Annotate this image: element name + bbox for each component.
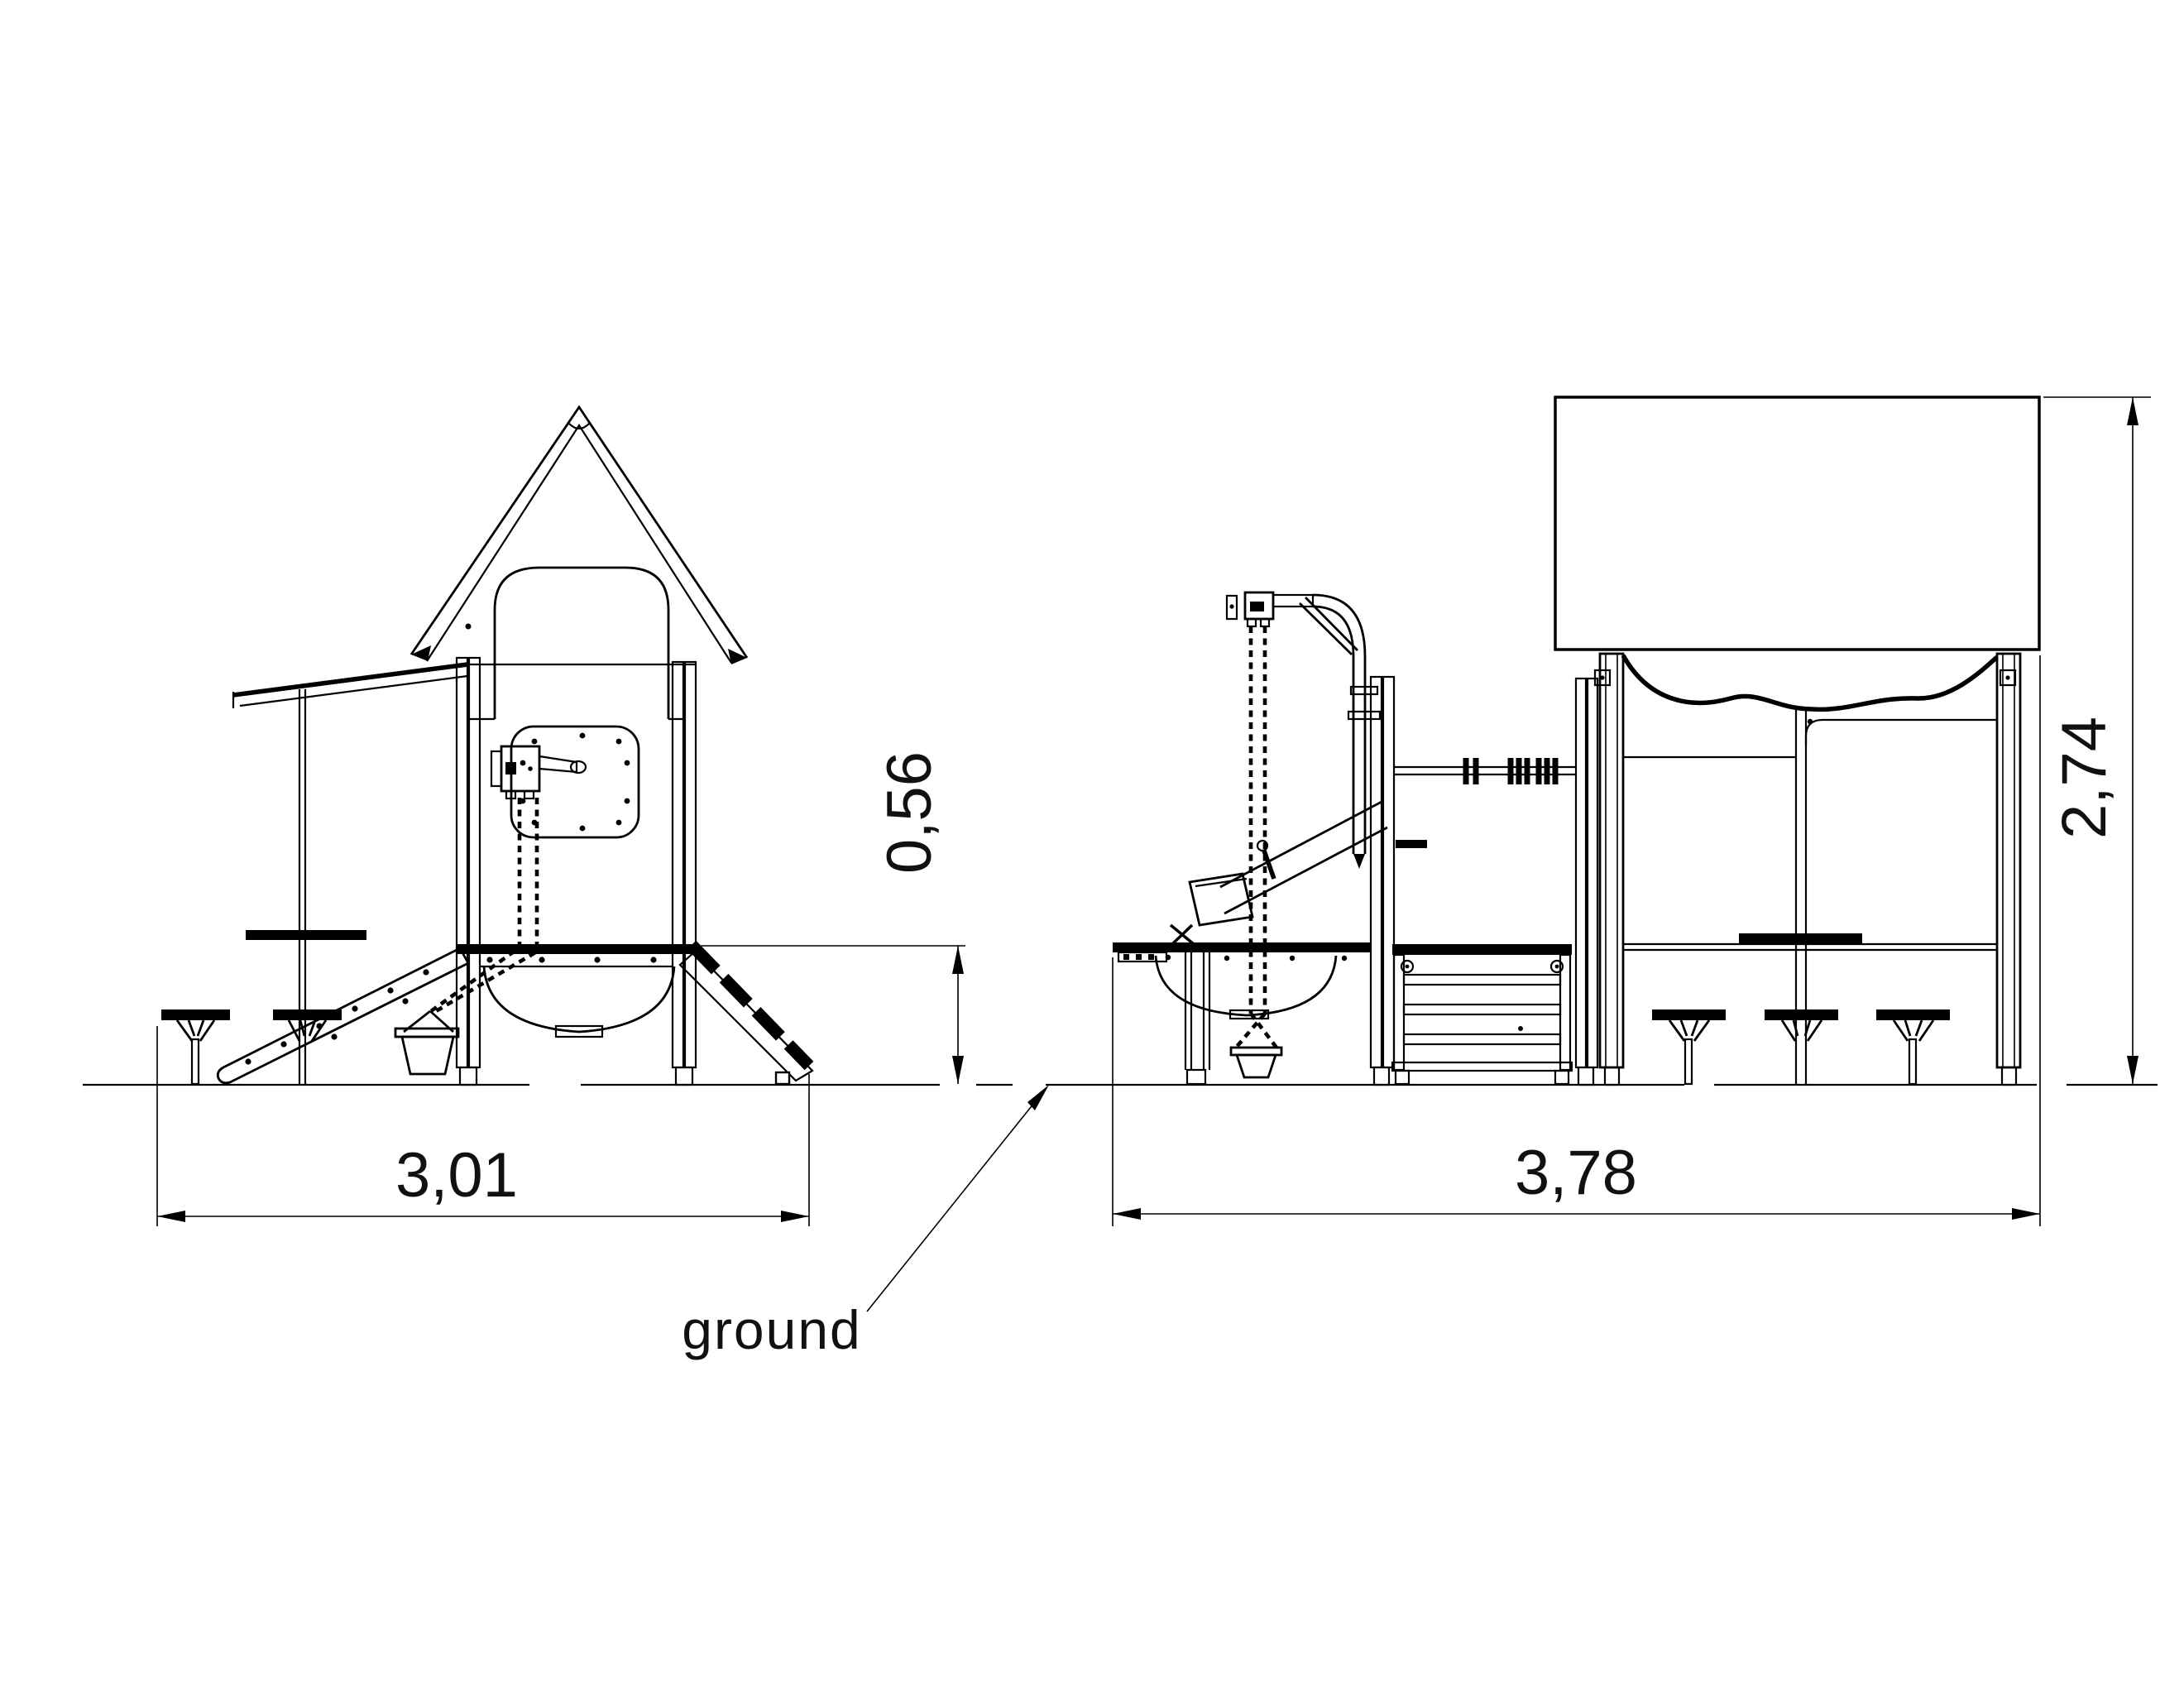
center-post: [1796, 710, 1806, 1084]
x-brace: [1171, 925, 1194, 944]
chain-right: [1236, 626, 1276, 1048]
stool-1: [1652, 1009, 1726, 1084]
ground-label: ground: [682, 1085, 1049, 1360]
stair-rung: [1404, 975, 1560, 985]
sand-bowl: [1156, 956, 1336, 1015]
ground-label-text: ground: [682, 1299, 862, 1360]
dim-value-overall-height: 2,74: [2049, 717, 2119, 839]
awning: [233, 664, 467, 708]
stool-left-tower: [161, 1009, 230, 1084]
under-bowl: [484, 966, 674, 1032]
stool-3: [1876, 1009, 1950, 1084]
tower-posts: [457, 658, 696, 1085]
chain-left: [431, 798, 537, 1011]
bucket-right: [1231, 1048, 1281, 1077]
dim-value-right-width: 3,78: [1515, 1138, 1637, 1208]
stair-rung: [1404, 1034, 1560, 1044]
stairs: [1392, 944, 1572, 1084]
panel-lines: [1623, 720, 1997, 950]
play-table-top: [246, 930, 366, 940]
roof-bolt: [466, 624, 472, 630]
flat-roof: [1555, 397, 2039, 650]
hand-grip: [1396, 840, 1427, 848]
stair-rung: [1404, 1005, 1560, 1014]
stair-foot: [1396, 1071, 1409, 1084]
bucket-left: [395, 1011, 458, 1074]
ramp-foot: [776, 1072, 789, 1084]
winch-crane-right: [1227, 592, 1380, 869]
pitched-roof: [411, 407, 747, 664]
stair-foot: [1555, 1071, 1569, 1084]
arm-tip: [571, 761, 586, 773]
technical-drawing-page: 0,56 3,01 3,78 2,74: [0, 0, 2184, 1688]
stool-2: [1765, 1009, 1838, 1041]
post-foot: [460, 1067, 477, 1085]
dimension-platform-height: 0,56: [699, 751, 965, 1084]
dimension-left-width: 3,01: [157, 1026, 809, 1226]
post-foot: [676, 1067, 692, 1085]
playground-elevation-drawing: 0,56 3,01 3,78 2,74: [0, 0, 2184, 1688]
platform: [457, 944, 699, 1037]
dim-value-platform-height: 0,56: [874, 751, 945, 874]
monkey-bar: [1394, 758, 1576, 784]
sand-table: [1113, 925, 1372, 1084]
left-play-tower: [161, 407, 812, 1085]
dim-value-left-width: 3,01: [395, 1140, 518, 1211]
climbing-ramp: [680, 945, 812, 1084]
arched-opening: [495, 568, 668, 719]
dimension-overall-height: 2,74: [2043, 397, 2151, 1084]
window-bolts: [520, 733, 630, 832]
access-board: [218, 948, 468, 1083]
winch-crane: [491, 746, 586, 798]
canopy-edge: [1623, 655, 1997, 709]
window: [511, 727, 639, 837]
table-top: [1739, 933, 1862, 943]
right-play-structure: [1113, 397, 2039, 1085]
